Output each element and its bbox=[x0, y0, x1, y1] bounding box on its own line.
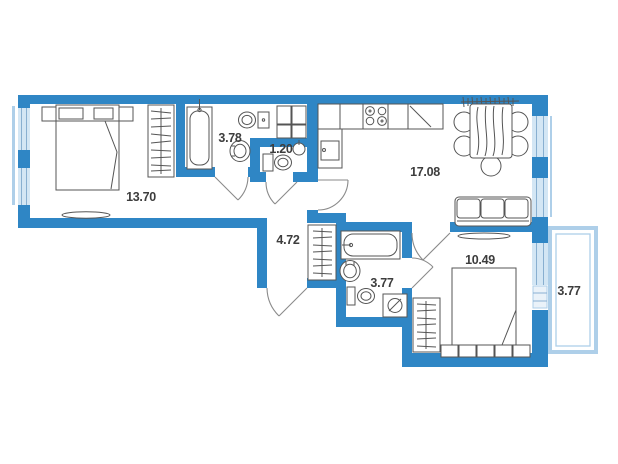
window bbox=[532, 243, 548, 285]
window bbox=[18, 168, 30, 205]
floor-plan: 13.70 3.78 1.20 17.08 4.72 3.77 10.49 3.… bbox=[0, 0, 618, 464]
window bbox=[532, 178, 548, 217]
double-bed-icon bbox=[56, 105, 119, 190]
room-area-label-bathroom-2: 3.77 bbox=[370, 276, 393, 290]
dining-table-icon bbox=[470, 104, 512, 158]
window-sill bbox=[550, 116, 552, 217]
room-area-label-wc: 1.20 bbox=[269, 142, 292, 156]
sofa-icon bbox=[455, 197, 531, 226]
kitchen-fixtures bbox=[318, 97, 531, 226]
sink-icon bbox=[340, 261, 360, 282]
radiator-icon bbox=[62, 212, 110, 218]
hallway-furniture bbox=[308, 225, 336, 280]
room-area-label-bedroom-1: 13.70 bbox=[126, 190, 156, 204]
nightstand-icon bbox=[119, 107, 133, 121]
bathtub-icon bbox=[341, 231, 400, 259]
nightstand-icon bbox=[42, 107, 56, 121]
room-area-label-bathroom-1: 3.78 bbox=[218, 131, 241, 145]
window bbox=[18, 106, 30, 150]
room-area-label-kitchen-living: 17.08 bbox=[410, 165, 440, 179]
toilet-icon bbox=[263, 154, 292, 171]
balcony-door bbox=[533, 286, 547, 308]
window-sill bbox=[12, 106, 15, 205]
room-area-label-bedroom-2: 10.49 bbox=[465, 253, 495, 267]
room-area-label-balcony: 3.77 bbox=[557, 284, 580, 298]
door-swing-kitchen bbox=[318, 180, 348, 210]
door-swing-bathroom-1 bbox=[215, 177, 248, 200]
toilet-icon bbox=[239, 112, 270, 128]
floor-plan-drawing: 13.70 3.78 1.20 17.08 4.72 3.77 10.49 3.… bbox=[0, 0, 618, 464]
door-swing-bathroom-2 bbox=[412, 258, 433, 288]
door-swing-entrance bbox=[267, 288, 307, 316]
door-swing-bedroom-2 bbox=[412, 233, 450, 260]
door-swing-wc bbox=[266, 182, 297, 204]
window bbox=[532, 116, 548, 157]
wardrobe-icon bbox=[308, 225, 336, 280]
wardrobe-icon bbox=[148, 105, 174, 177]
bathtub-icon bbox=[187, 99, 212, 169]
wardrobe-icon bbox=[413, 298, 440, 352]
radiator-icon bbox=[458, 233, 510, 239]
kitchen-sink-icon bbox=[321, 141, 339, 160]
room-area-label-hallway: 4.72 bbox=[276, 233, 299, 247]
shelves-icon bbox=[277, 106, 306, 138]
double-bed-icon bbox=[452, 268, 516, 345]
bathroom-2-fixtures bbox=[340, 231, 407, 317]
washing-machine-icon bbox=[383, 294, 407, 317]
bedroom-2-furniture bbox=[413, 233, 530, 357]
headboard-cabinets bbox=[441, 345, 530, 357]
